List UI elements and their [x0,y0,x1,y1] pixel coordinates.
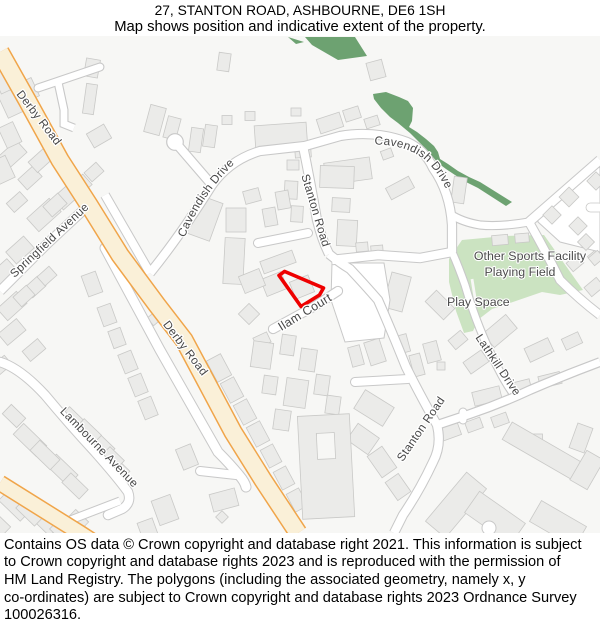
svg-text:Other Sports Facility: Other Sports Facility [474,249,587,263]
svg-text:Play Space: Play Space [447,295,510,309]
svg-text:Playing Field: Playing Field [485,265,556,279]
